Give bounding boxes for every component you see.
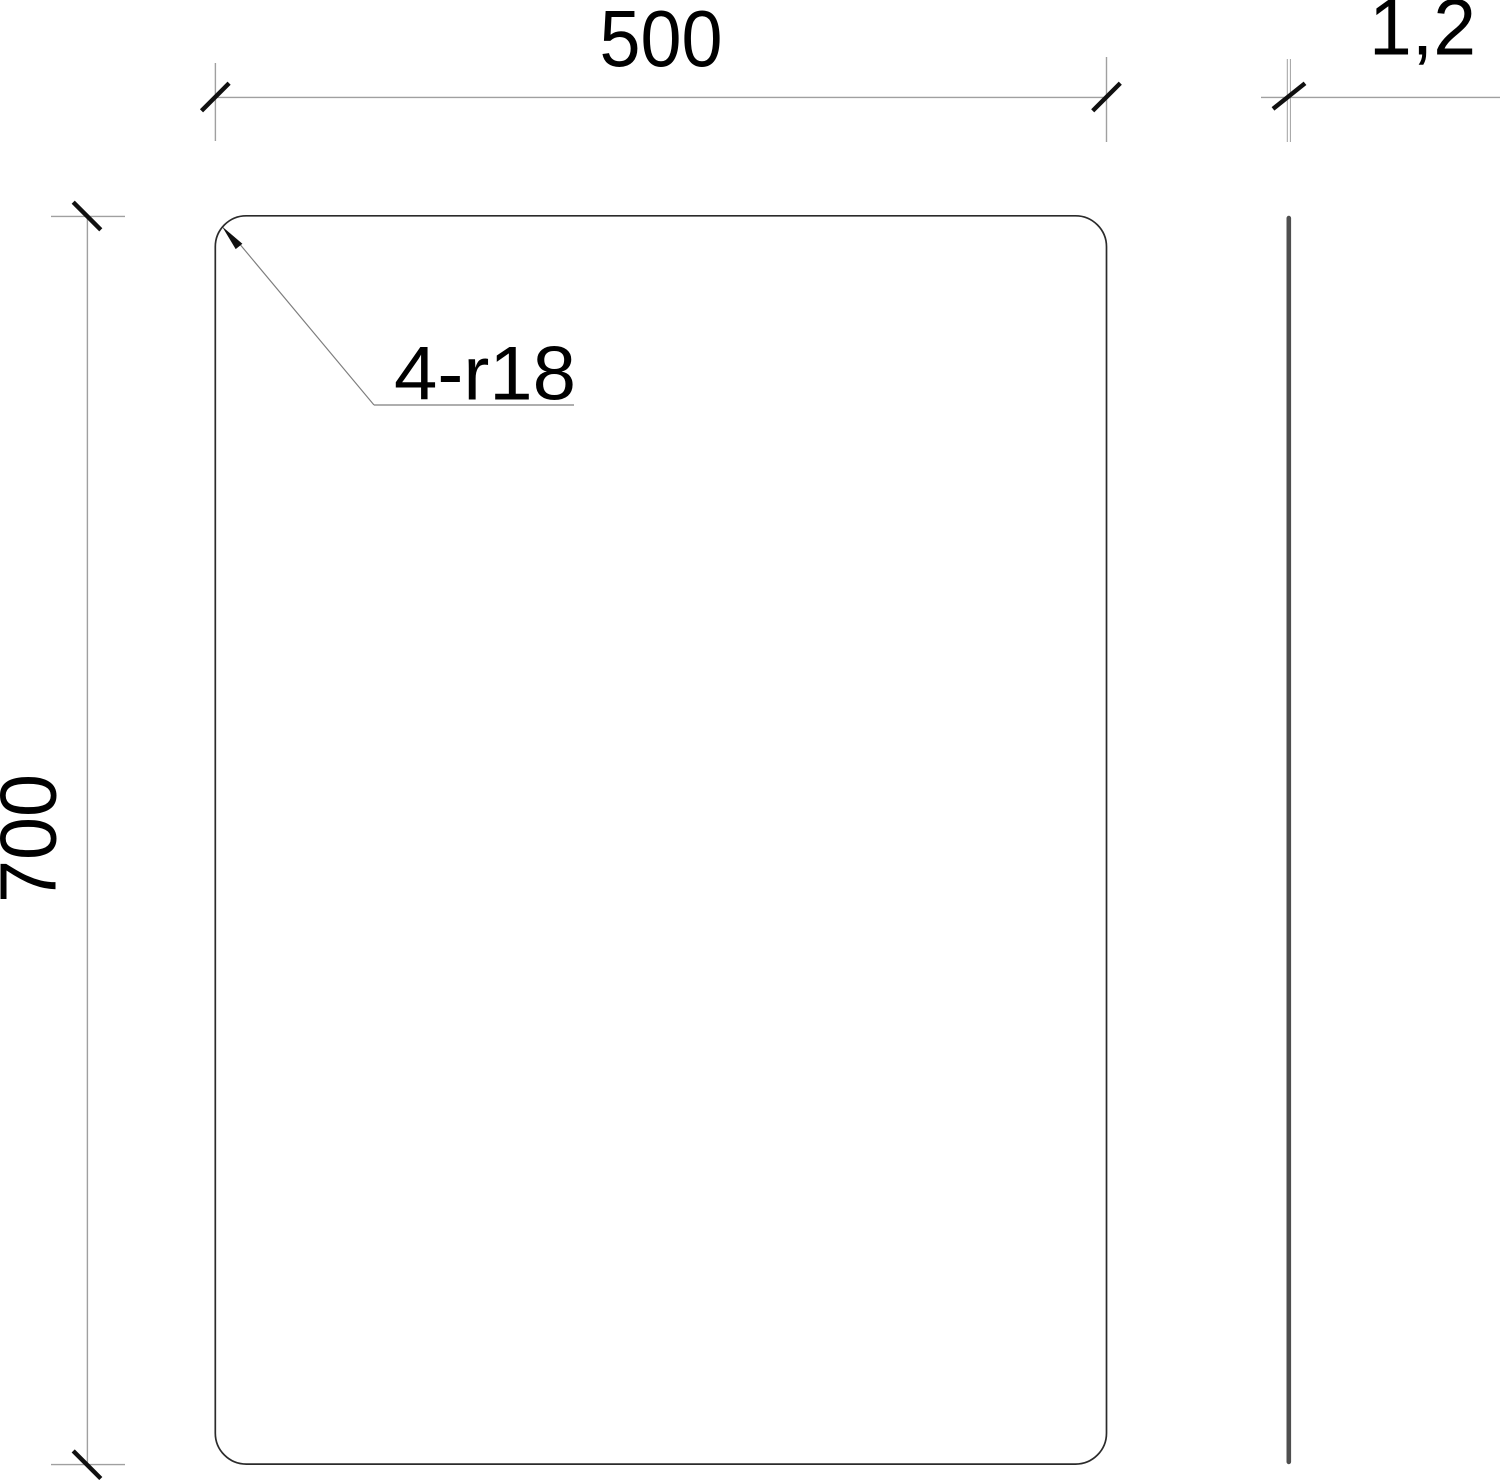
- svg-text:1,2: 1,2: [1369, 0, 1476, 72]
- svg-text:500: 500: [600, 0, 723, 83]
- svg-text:700: 700: [0, 774, 73, 903]
- svg-text:4-r18: 4-r18: [394, 332, 576, 417]
